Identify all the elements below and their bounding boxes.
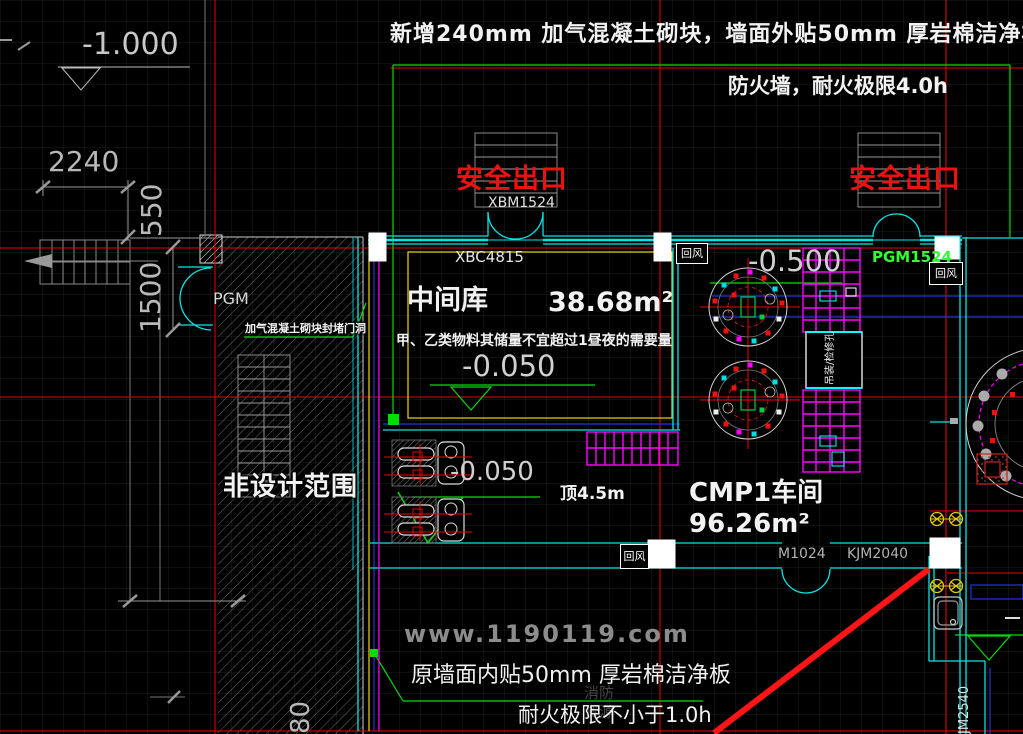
floor-drain — [934, 597, 962, 629]
door-label-pgm: PGM — [213, 291, 249, 307]
door-label-xbm1524: XBM1524 — [488, 196, 555, 210]
elevation-right: -0.500 — [748, 247, 842, 276]
storage-note: 甲、乙类物料其储量不宜超过1昼夜的需要量 — [396, 334, 672, 348]
room-middle-store-name: 中间库 — [407, 287, 488, 314]
dim-1500: 1500 — [137, 262, 165, 333]
safety-exit-1: 安全出口 — [456, 166, 568, 193]
ceiling-height-label: 顶4.5m — [560, 486, 625, 503]
bottom-note-line2: 耐火极限不小于1.0h — [518, 705, 712, 726]
return-air-label-3: 回风 — [620, 544, 649, 569]
pgm1524-door — [873, 214, 920, 237]
door-label-m1024: M1024 — [778, 547, 826, 561]
red-hatched-box — [977, 454, 1007, 484]
block-door-note: 加气混凝土砌块封堵门洞 — [245, 323, 366, 334]
watermark-url: www.1190119.com — [404, 622, 690, 646]
elevation-symbol-topleft — [58, 67, 190, 90]
xbm1524-door — [488, 212, 543, 239]
grating-b — [803, 390, 860, 472]
bottom-note-line1: 原墙面内贴50mm 厚岩棉洁净板 — [411, 665, 731, 687]
grating-c — [587, 432, 678, 465]
top-note-line2: 防火墙，耐火极限4.0h — [700, 76, 948, 97]
room-middle-store-area: 38.68m² — [548, 289, 673, 316]
door-label-jm2540: JM2540 — [958, 686, 971, 734]
elevation-store: -0.050 — [462, 352, 556, 381]
door-label-kjm2040: KJM2040 — [847, 547, 908, 561]
elevation-pump: -0.050 — [450, 459, 534, 485]
dim-80: 80 — [288, 701, 314, 734]
door-label-xbc4815: XBC4815 — [455, 250, 524, 265]
elevation-entry: -1.000 — [82, 30, 179, 60]
cad-drawing: 新增240mm 加气混凝土砌块，墙面外贴50mm 厚岩棉洁净板 防火墙，耐火极限… — [0, 0, 1023, 734]
pgm-door — [178, 267, 213, 330]
room-cmp-name: CMP1车间 — [689, 480, 823, 506]
m1024-door — [782, 569, 830, 593]
shaft-label: 吊装/检修孔 — [826, 332, 836, 385]
safety-exit-2: 安全出口 — [849, 166, 961, 193]
return-air-label-1: 回风 — [676, 243, 708, 264]
dim-2240: 2240 — [48, 148, 119, 176]
pump-unit-2 — [384, 497, 472, 543]
dim-550: 550 — [138, 184, 166, 237]
return-air-label-2: 回风 — [929, 262, 963, 285]
thick-red-line — [714, 569, 929, 733]
top-note-line1: 新增240mm 加气混凝土砌块，墙面外贴50mm 厚岩棉洁净板 — [390, 24, 1018, 46]
non-design-area-label: 非设计范围 — [223, 474, 358, 500]
room-cmp-area: 96.26m² — [689, 511, 810, 537]
